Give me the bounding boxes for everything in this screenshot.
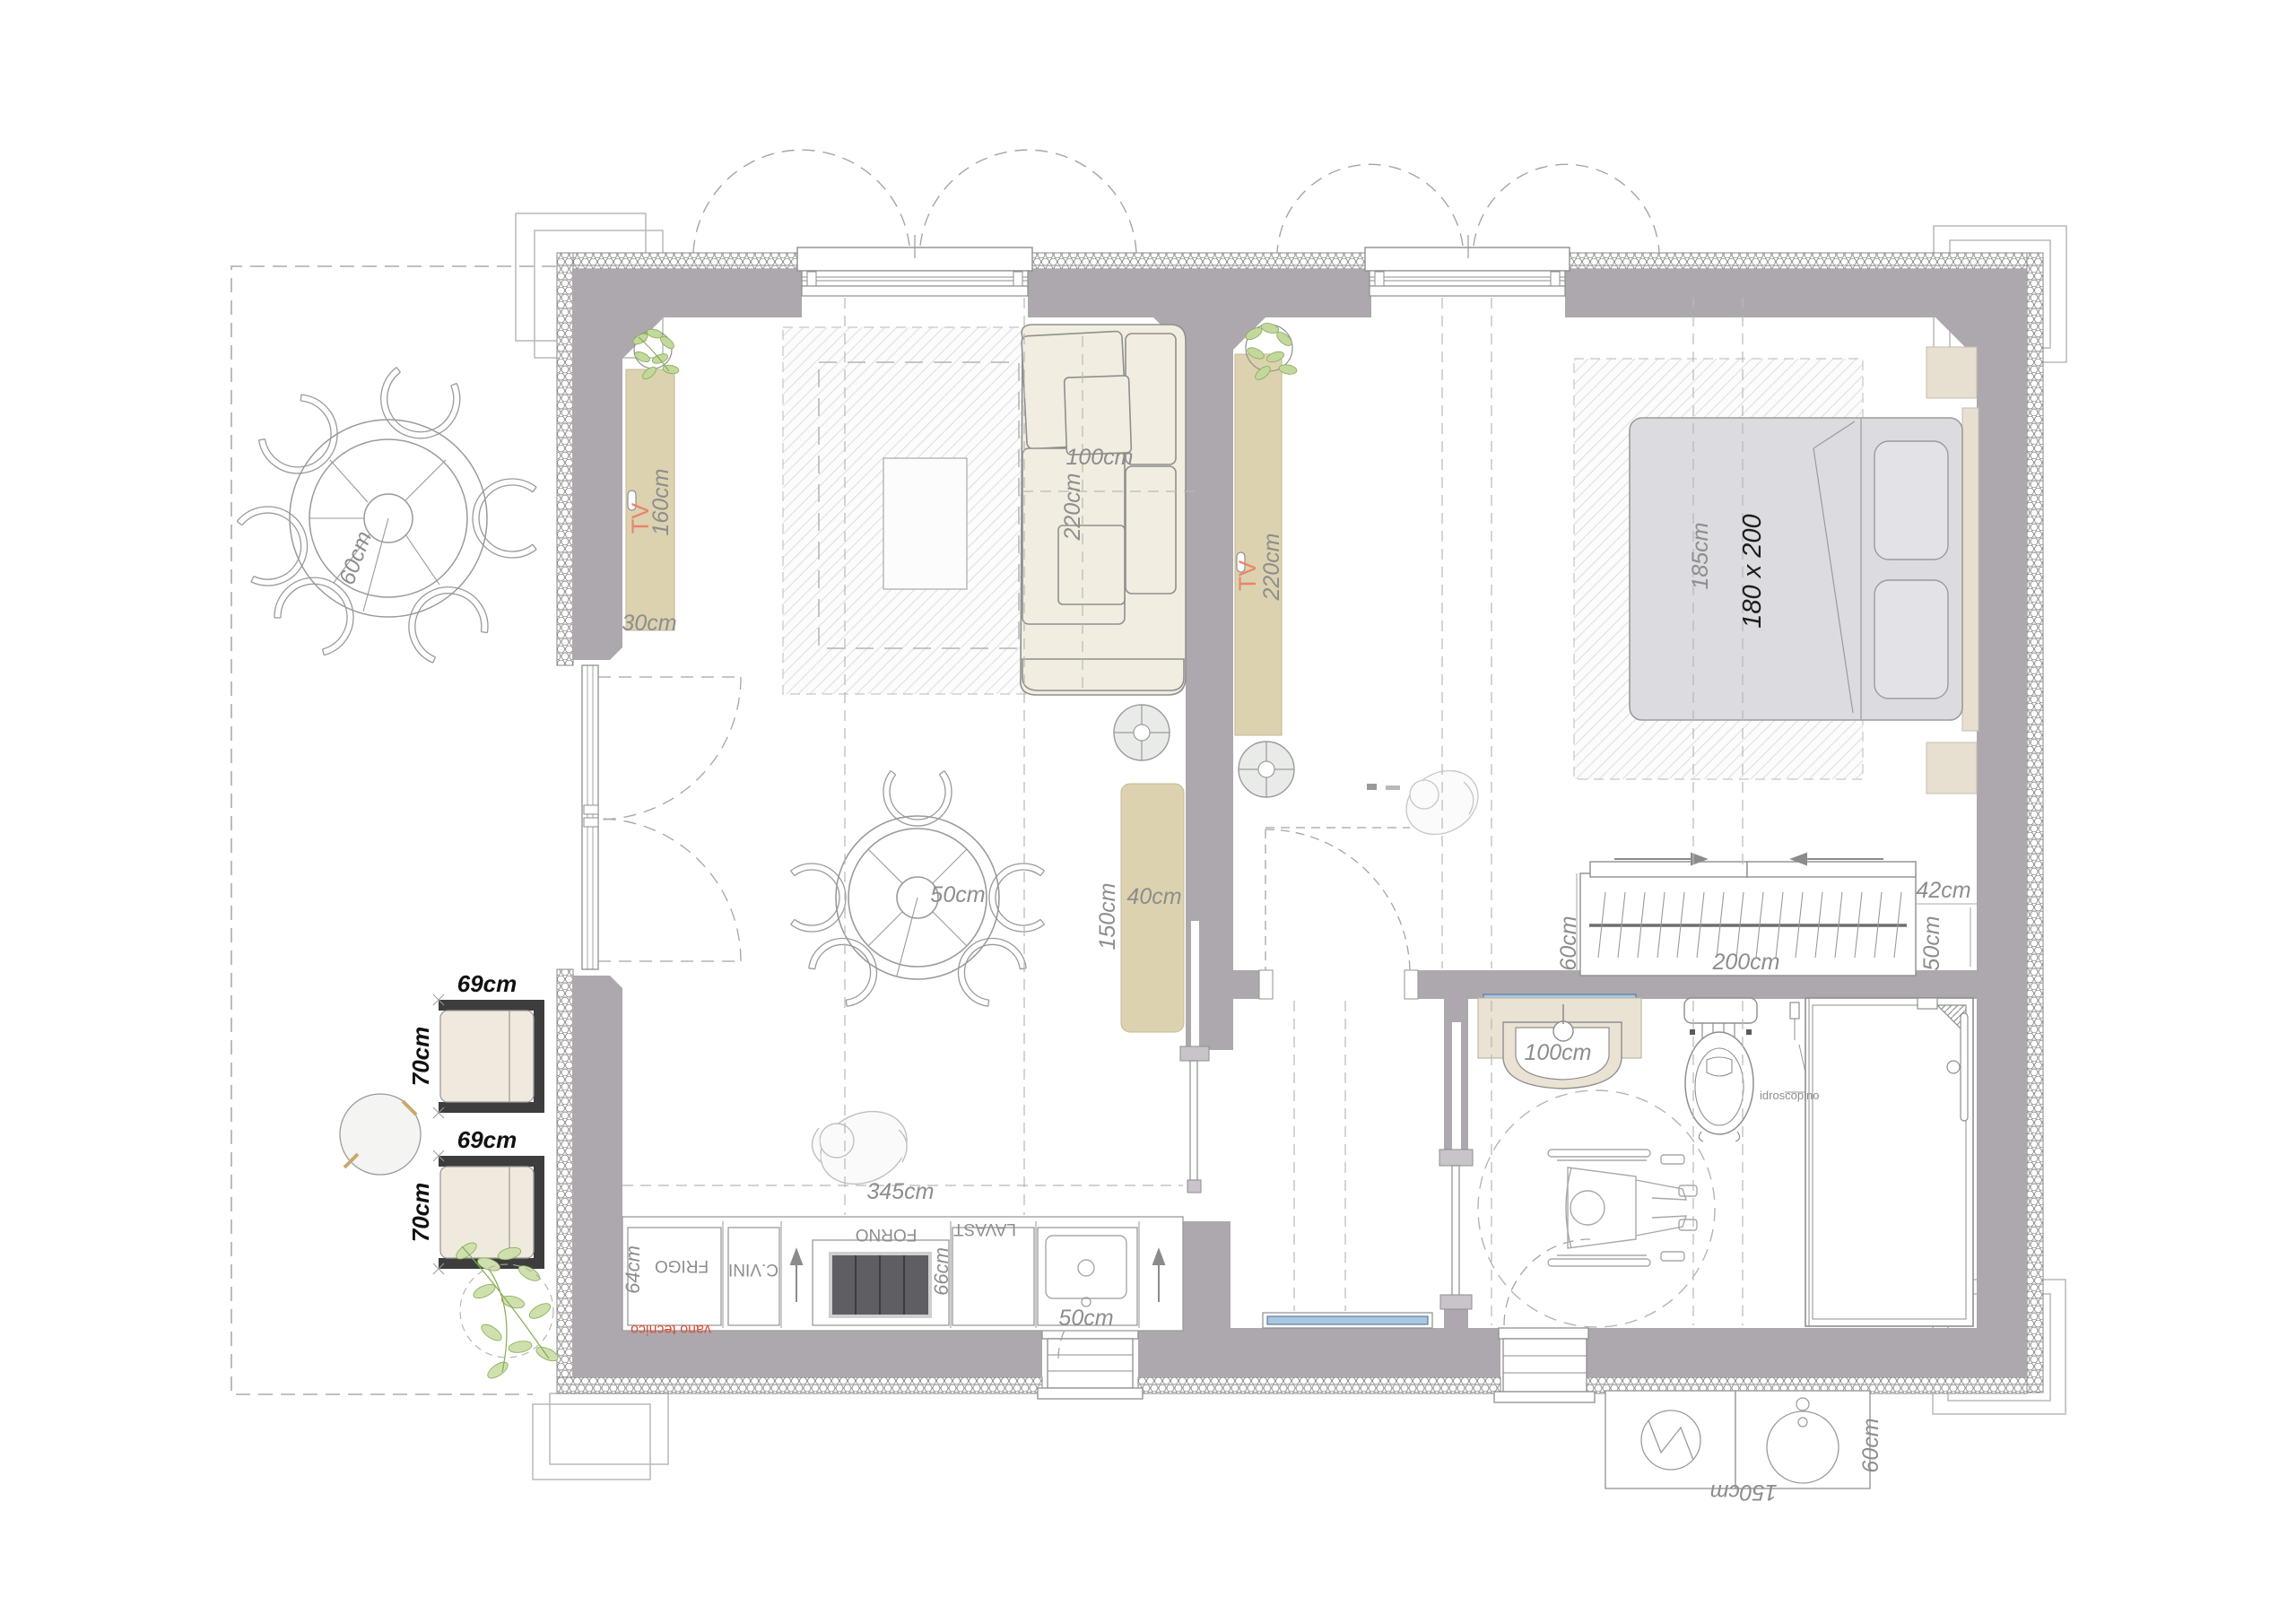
svg-text:60cm: 60cm (1556, 916, 1581, 970)
svg-text:30cm: 30cm (622, 611, 676, 636)
svg-text:70cm: 70cm (407, 1183, 434, 1243)
svg-text:50cm: 50cm (1058, 1306, 1113, 1331)
svg-text:TV: TV (1234, 560, 1261, 592)
svg-text:40cm: 40cm (1126, 884, 1181, 909)
svg-text:185cm: 185cm (1688, 522, 1713, 589)
svg-text:150cm: 150cm (1095, 882, 1120, 950)
svg-text:FRIGO: FRIGO (655, 1256, 709, 1275)
svg-text:50cm: 50cm (930, 882, 985, 907)
svg-text:180 x 200: 180 x 200 (1738, 514, 1767, 628)
svg-text:66cm: 66cm (930, 1247, 952, 1296)
svg-text:idroscopino: idroscopino (1760, 1089, 1820, 1102)
svg-text:220cm: 220cm (1259, 533, 1284, 601)
svg-text:100cm: 100cm (1524, 1040, 1591, 1065)
svg-text:69cm: 69cm (457, 970, 517, 997)
svg-text:200cm: 200cm (1711, 950, 1779, 975)
svg-text:50cm: 50cm (1919, 916, 1944, 970)
svg-text:FORNO: FORNO (856, 1225, 918, 1244)
svg-text:64cm: 64cm (622, 1245, 644, 1294)
svg-text:C.VINI: C.VINI (728, 1260, 778, 1279)
svg-text:vano tecnico: vano tecnico (631, 1322, 711, 1337)
svg-text:TV: TV (627, 503, 654, 534)
svg-text:69cm: 69cm (457, 1126, 517, 1153)
svg-text:60cm: 60cm (1858, 1418, 1883, 1472)
svg-text:150cm: 150cm (1709, 1480, 1777, 1505)
svg-text:42cm: 42cm (1916, 878, 1970, 903)
svg-text:345cm: 345cm (866, 1179, 934, 1204)
svg-text:100cm: 100cm (1065, 445, 1133, 470)
svg-text:70cm: 70cm (407, 1027, 434, 1087)
svg-text:220cm: 220cm (1060, 473, 1085, 541)
svg-text:LAVAST: LAVAST (953, 1219, 1016, 1238)
